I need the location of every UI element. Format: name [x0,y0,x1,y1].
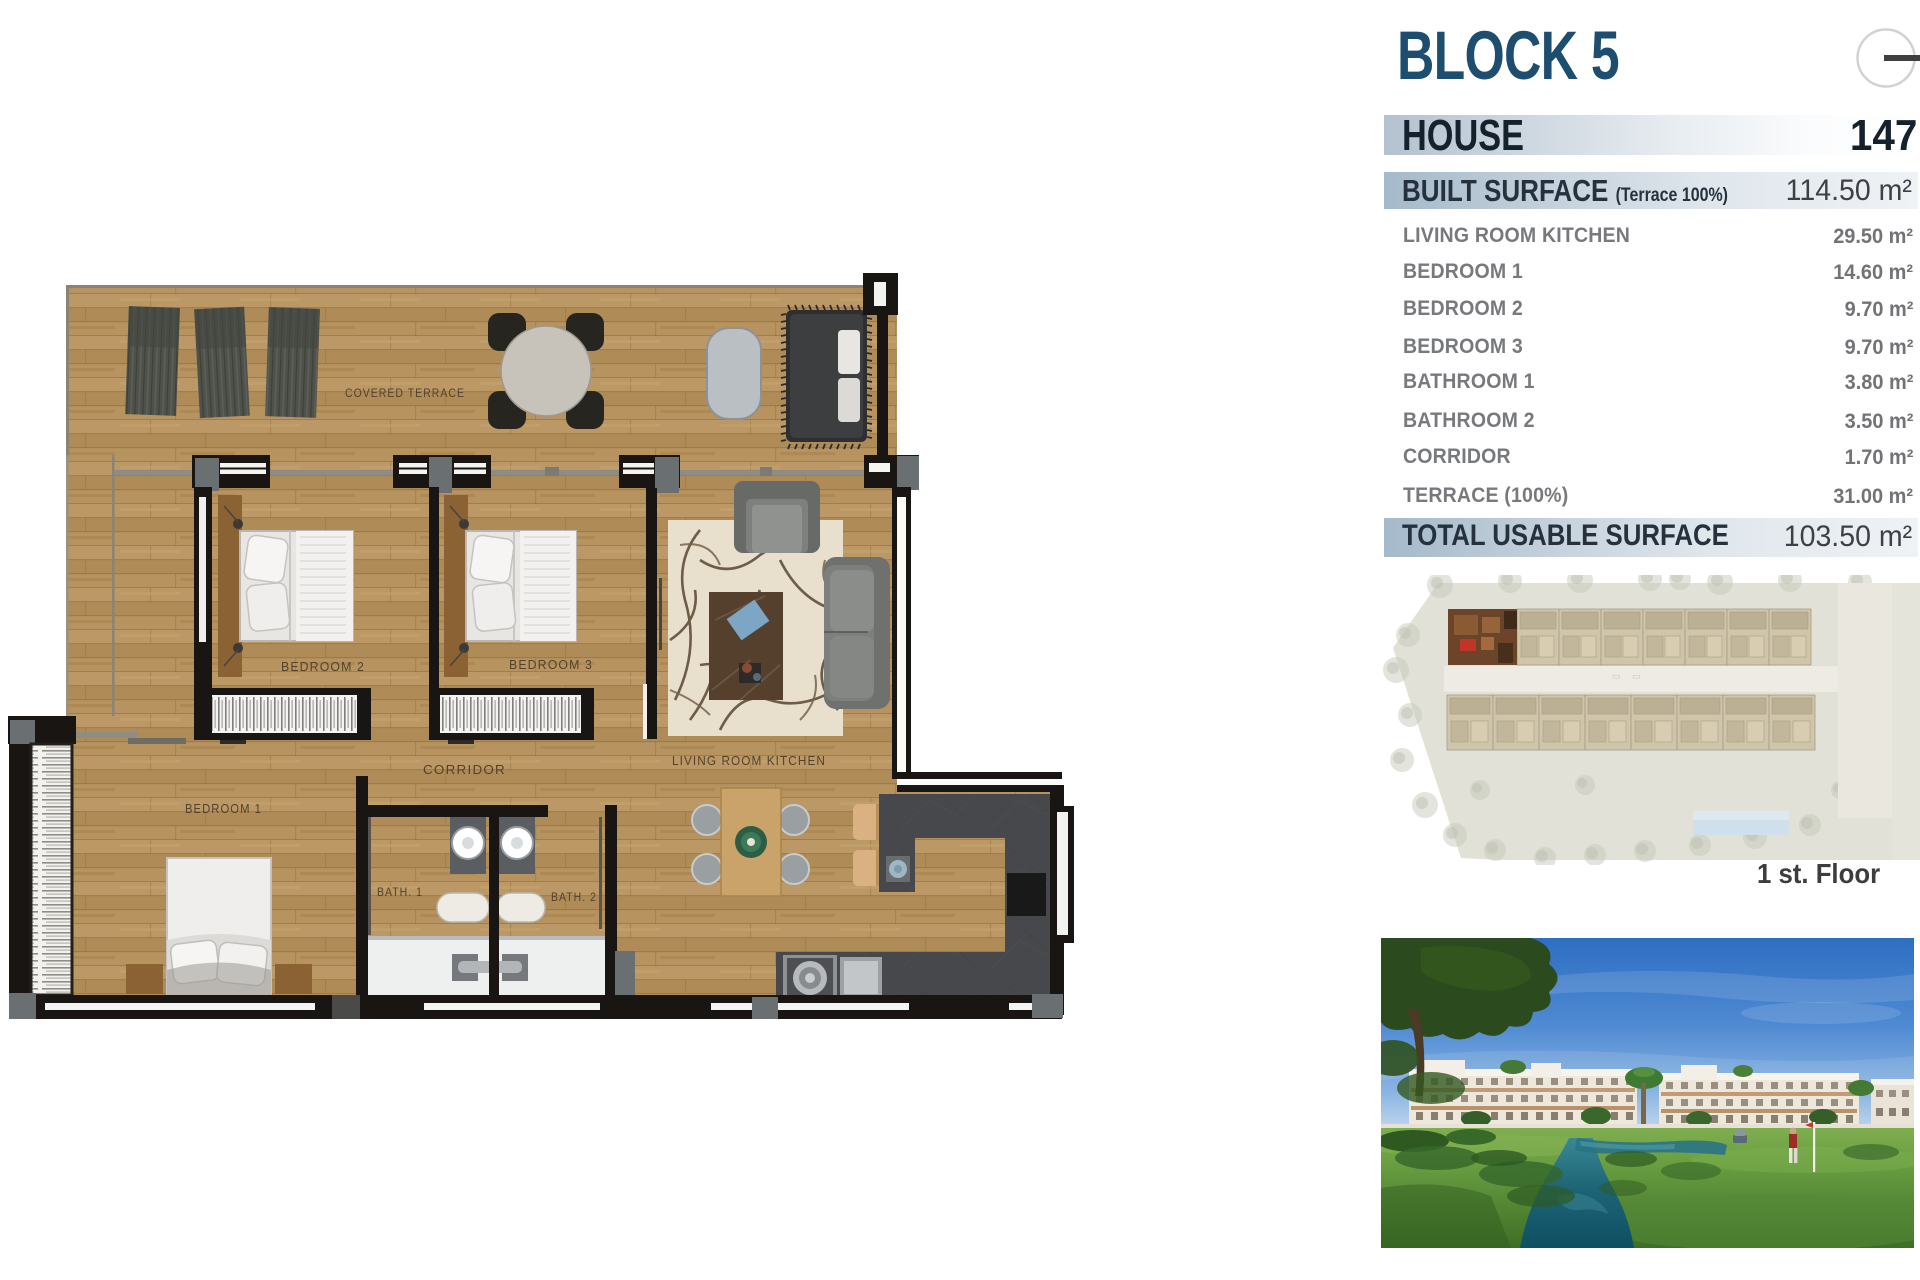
svg-text:▭: ▭ [1612,671,1621,681]
svg-text:BATH. 2: BATH. 2 [551,890,597,904]
svg-text:▭: ▭ [1632,671,1641,681]
svg-text:LIVING ROOM KITCHEN: LIVING ROOM KITCHEN [672,753,826,768]
svg-text:CORRIDOR: CORRIDOR [423,762,506,777]
svg-text:COVERED TERRACE: COVERED TERRACE [345,386,465,400]
svg-text:BEDROOM 2: BEDROOM 2 [281,659,365,674]
svg-text:BEDROOM 3: BEDROOM 3 [509,657,593,672]
svg-text:BEDROOM 1: BEDROOM 1 [185,801,262,816]
svg-text:BATH. 1: BATH. 1 [377,885,423,899]
